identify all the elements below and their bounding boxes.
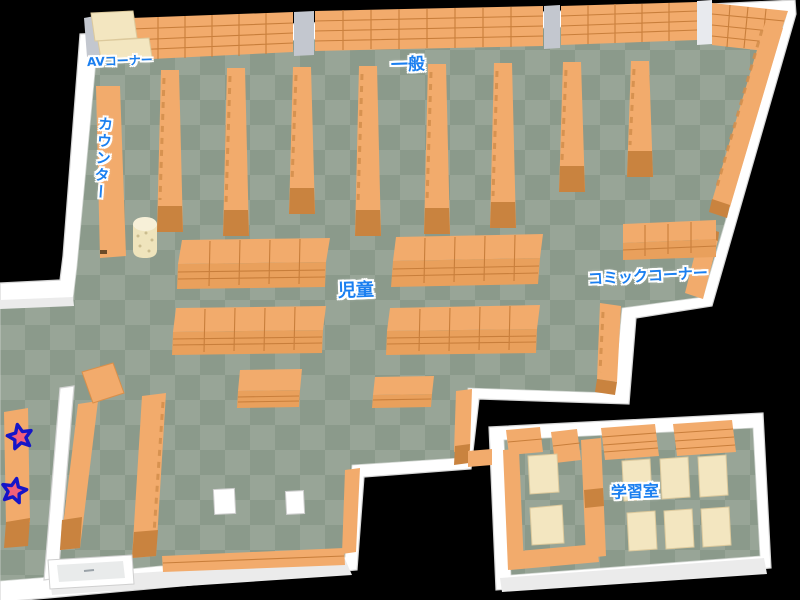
label-children: 児童 — [338, 281, 375, 301]
kiosk — [285, 491, 304, 515]
study-desk — [627, 511, 657, 551]
bookshelf — [597, 303, 621, 382]
bookshelf — [238, 369, 302, 391]
kiosk — [213, 488, 235, 514]
study-desk — [660, 457, 690, 499]
bookshelf — [468, 449, 492, 467]
bookshelf — [623, 220, 716, 243]
bookshelf — [454, 389, 472, 452]
bookshelf — [178, 238, 330, 264]
label-general: 一般 — [391, 56, 426, 75]
door-handle — [84, 570, 94, 571]
umbrella-stand — [133, 217, 157, 258]
library-floor-map: AVコーナー 一般 カウンター 児童 コミックコーナー 学習室 — [0, 0, 800, 600]
av-desk — [91, 11, 137, 41]
study-desk — [698, 455, 728, 497]
entrance-door — [48, 555, 134, 589]
pillar — [544, 5, 560, 49]
stand-top — [133, 217, 157, 231]
study-desk — [701, 507, 731, 547]
label-study-room: 学習室 — [611, 483, 660, 501]
label-av-corner: AVコーナー — [87, 54, 153, 69]
study-desk — [664, 509, 694, 549]
study-desk — [528, 454, 559, 494]
pillar — [294, 11, 314, 56]
study-desk — [530, 505, 564, 545]
floor-map-canvas — [0, 0, 800, 600]
bookshelf — [173, 306, 326, 332]
pillar — [697, 0, 712, 45]
bookshelf — [373, 376, 434, 395]
bookshelf — [387, 305, 540, 331]
counter-detail — [100, 250, 107, 254]
bookshelf — [393, 234, 543, 261]
